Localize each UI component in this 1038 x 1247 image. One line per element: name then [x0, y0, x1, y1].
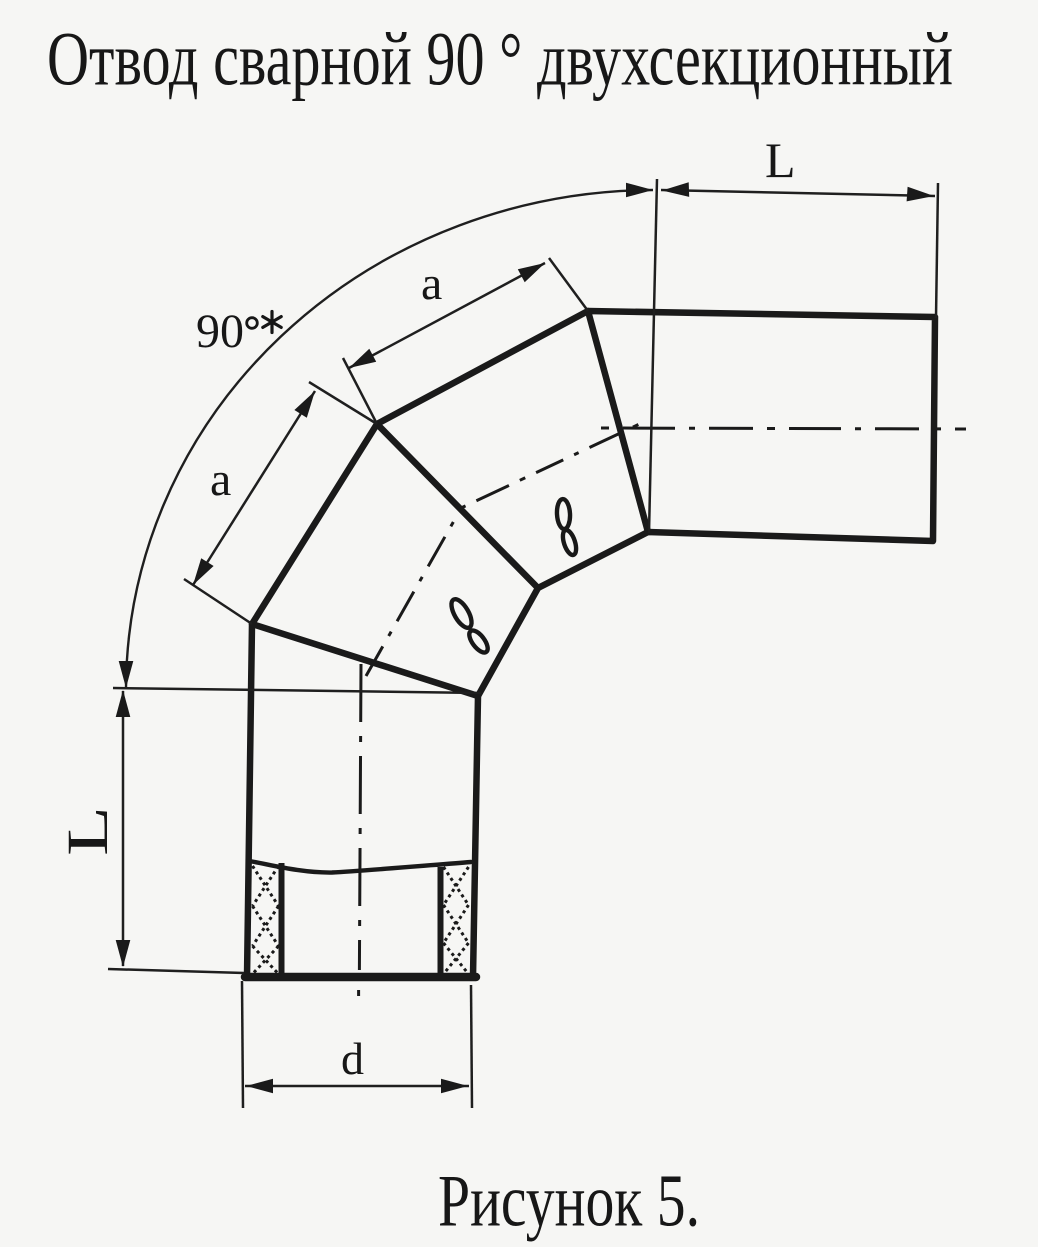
svg-text:a: a — [210, 453, 231, 506]
svg-text:Рисунок 5.: Рисунок 5. — [438, 1161, 700, 1243]
svg-text:a: a — [421, 257, 442, 310]
svg-text:L: L — [55, 806, 120, 856]
svg-text:L: L — [765, 132, 796, 188]
svg-text:Отвод сварной 90 ° двухсекцион: Отвод сварной 90 ° двухсекционный — [47, 18, 953, 102]
svg-text:d: d — [341, 1033, 364, 1084]
svg-text:90: 90 — [196, 305, 244, 358]
